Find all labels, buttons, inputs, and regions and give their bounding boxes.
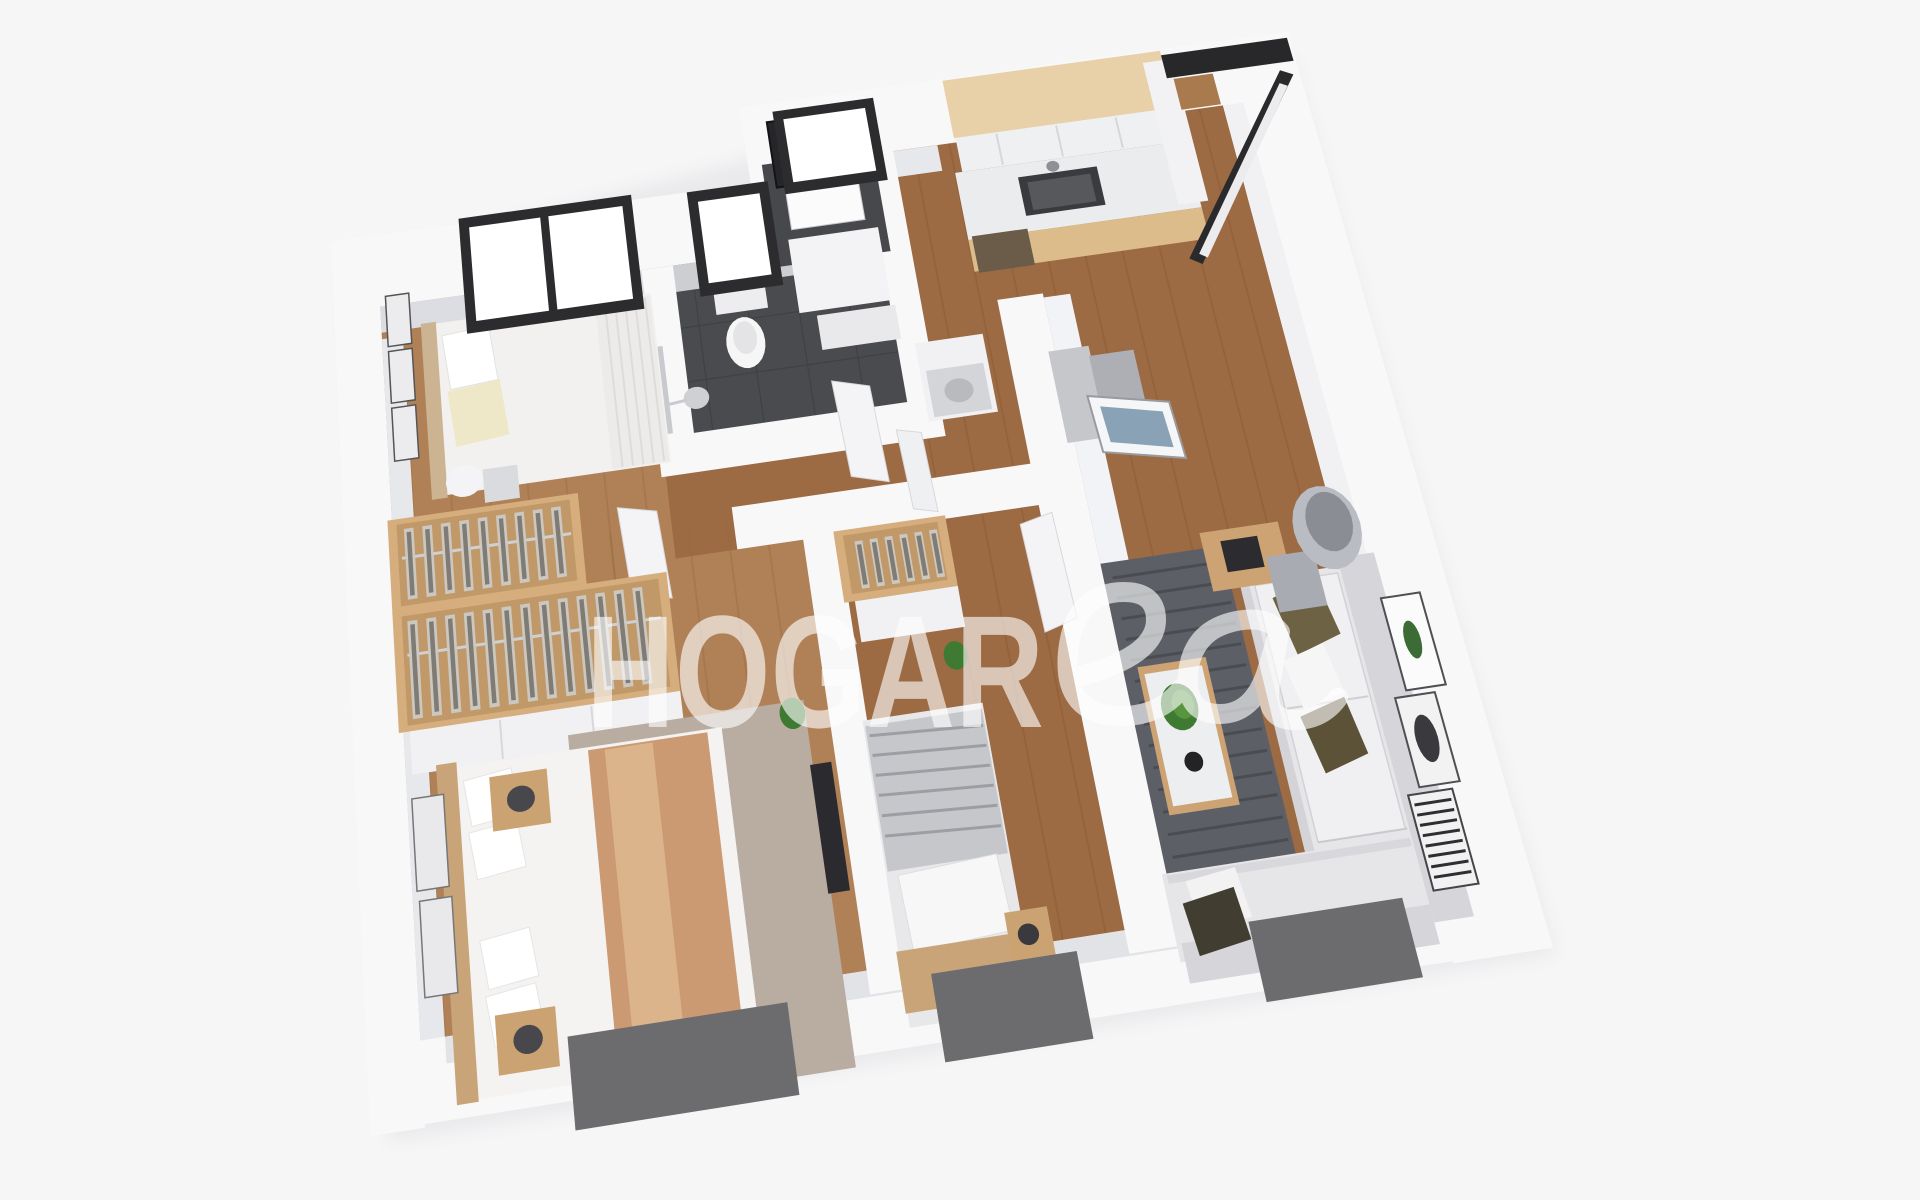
svg-text:HOGAR: HOGAR [586, 582, 1044, 761]
